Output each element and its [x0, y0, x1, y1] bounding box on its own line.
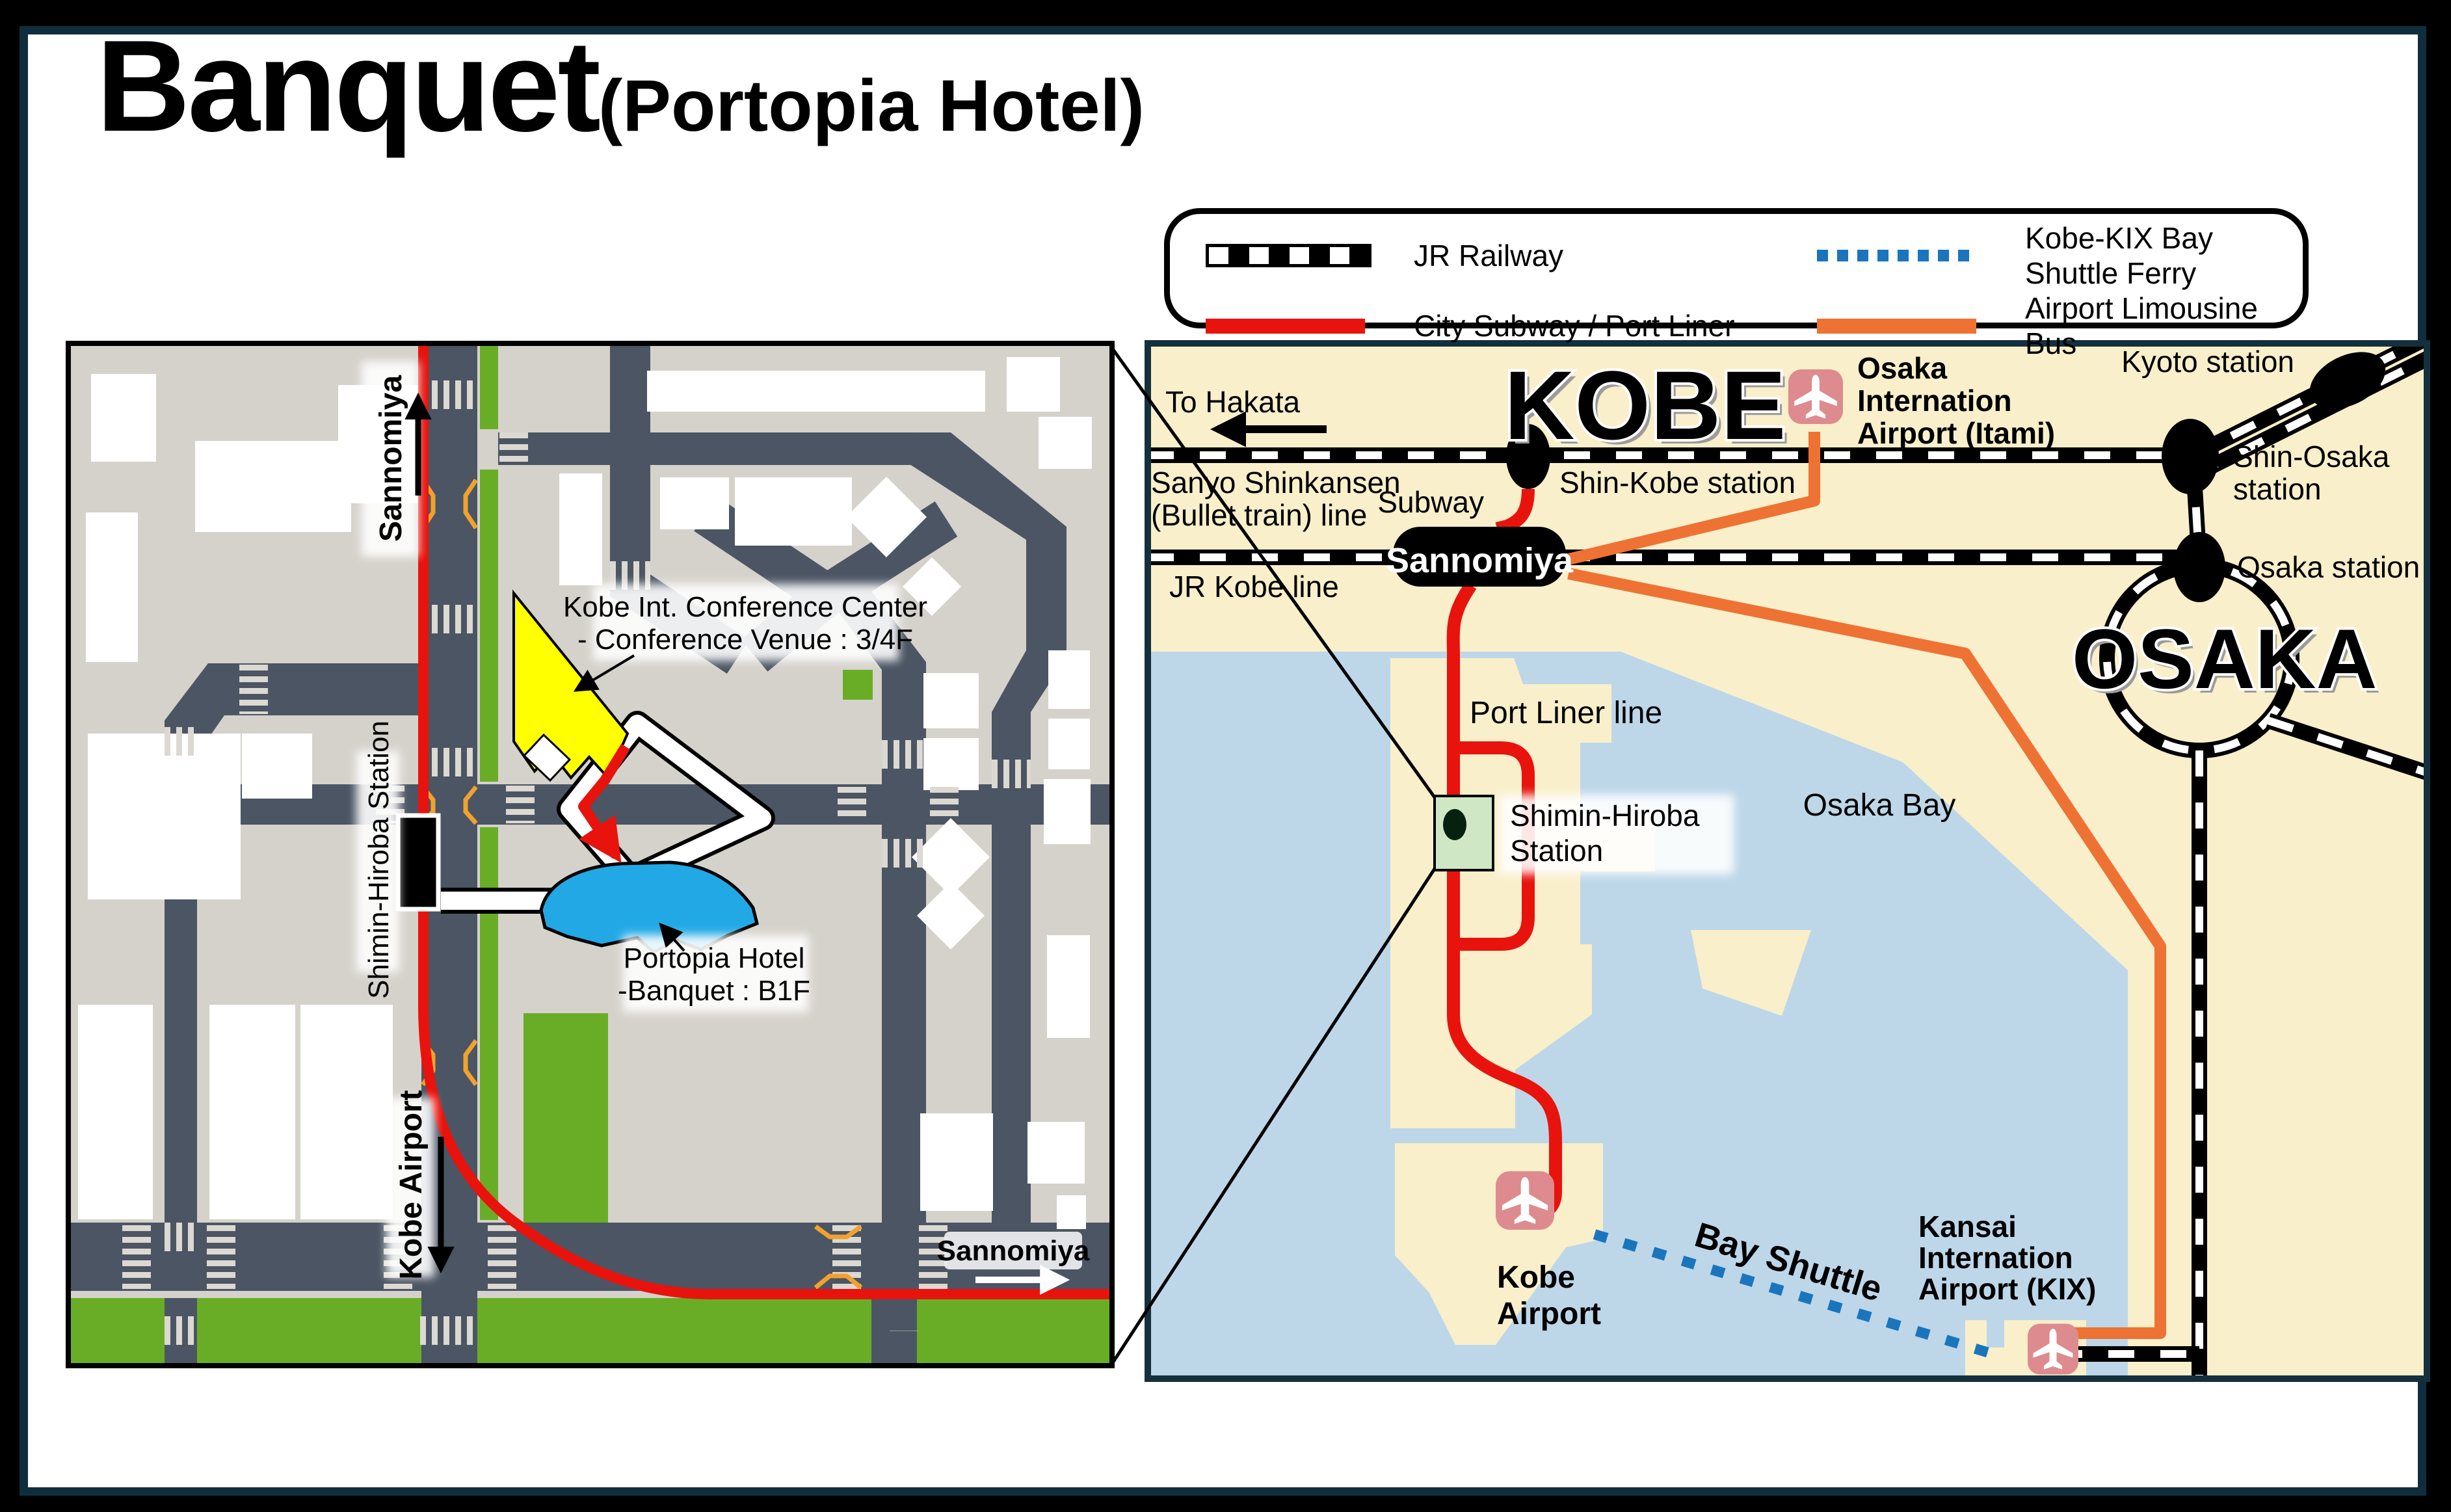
legend-label-jr: JR Railway — [1414, 238, 1804, 273]
kix-label-1: Kansai — [1918, 1210, 2017, 1243]
shimin-hiroba-area-marker — [1435, 796, 1493, 870]
sannomiya-station-label: Sannomiya — [1386, 541, 1574, 580]
kobe-airport-label-1: Kobe — [1497, 1260, 1575, 1295]
itami-label-3: Airport (Itami) — [1857, 416, 2055, 450]
itami-label-1: Osaka — [1857, 351, 1948, 385]
shimin-hiroba-label-1: Shimin-Hiroba — [1510, 799, 1700, 832]
jr-railway-swatch — [1206, 244, 1371, 267]
sanyo-line-label-1: Sanyo Shinkansen — [1151, 466, 1401, 499]
itami-label-2: Internation — [1857, 384, 2012, 418]
shin-osaka-label-2: station — [2233, 472, 2322, 506]
shin-osaka-label-1: Shin-Osaka — [2233, 440, 2390, 473]
legend-box: JR Railway Kobe-KIX Bay Shuttle Ferry Ci… — [1164, 208, 2309, 328]
osaka-bay-label: Osaka Bay — [1803, 788, 1956, 823]
shimin-hiroba-label-2: Station — [1510, 834, 1603, 868]
kix-label-3: Airport (KIX) — [1918, 1272, 2096, 1306]
title-sub: (Portopia Hotel) — [598, 64, 1145, 148]
osaka-title: OSAKA — [2072, 611, 2377, 706]
kobe-airport-label-2: Airport — [1497, 1297, 1601, 1331]
sannomiya-bottom-label: Sannomiya — [937, 1235, 1090, 1267]
kix-label-2: Internation — [1918, 1241, 2073, 1275]
shin-osaka-station-dot — [2162, 419, 2219, 494]
shimin-hiroba-station-label: Shimin-Hiroba Station — [363, 721, 395, 999]
title-main: Banquet — [96, 12, 598, 161]
port-liner-line-label: Port Liner line — [1470, 696, 1662, 730]
detail-map: Sannomiya Kobe Int. Conference Center - … — [68, 343, 1112, 1366]
bay-shuttle-ferry-swatch — [1817, 250, 1976, 261]
shimin-hiroba-station-building — [398, 816, 438, 909]
conference-callout-line1: Kobe Int. Conference Center — [563, 591, 927, 623]
region-map: Sannomiya KOBE KOBE OSAKA OSAKA To Hakat… — [1148, 336, 2441, 1379]
sannomiya-top-label: Sannomiya — [374, 375, 408, 542]
shin-kobe-label: Shin-Kobe station — [1559, 466, 1795, 499]
legend-label-ferry: Kobe-KIX Bay Shuttle Ferry — [2025, 220, 2267, 291]
jr-kobe-line-label: JR Kobe line — [1169, 570, 1339, 603]
portopia-callout-line2: -Banquet : B1F — [618, 975, 810, 1007]
osaka-station-dot — [2173, 532, 2225, 602]
limousine-bus-swatch — [1817, 319, 1976, 334]
sanyo-line-label-2: (Bullet train) line — [1151, 498, 1367, 532]
to-hakata-label: To Hakata — [1165, 385, 1301, 419]
conference-callout-line2: - Conference Venue : 3/4F — [577, 624, 913, 656]
subway-label: Subway — [1377, 485, 1484, 519]
kobe-airport-airplane-icon — [1496, 1171, 1554, 1230]
osaka-station-label: Osaka station — [2237, 550, 2420, 584]
itami-airplane-icon — [1788, 369, 1843, 424]
legend-label-bus: Airport Limousine Bus — [2025, 291, 2267, 361]
page-title: Banquet(Portopia Hotel) — [96, 12, 1145, 161]
kix-airplane-icon — [2028, 1324, 2078, 1375]
kobe-airport-direction-label: Kobe Airport — [394, 1090, 429, 1280]
kobe-title: KOBE — [1504, 351, 1786, 460]
legend-label-subway: City Subway / Port Liner — [1414, 308, 1804, 343]
subway-portliner-swatch — [1206, 319, 1365, 334]
portopia-callout-line1: Portopia Hotel — [624, 942, 805, 974]
